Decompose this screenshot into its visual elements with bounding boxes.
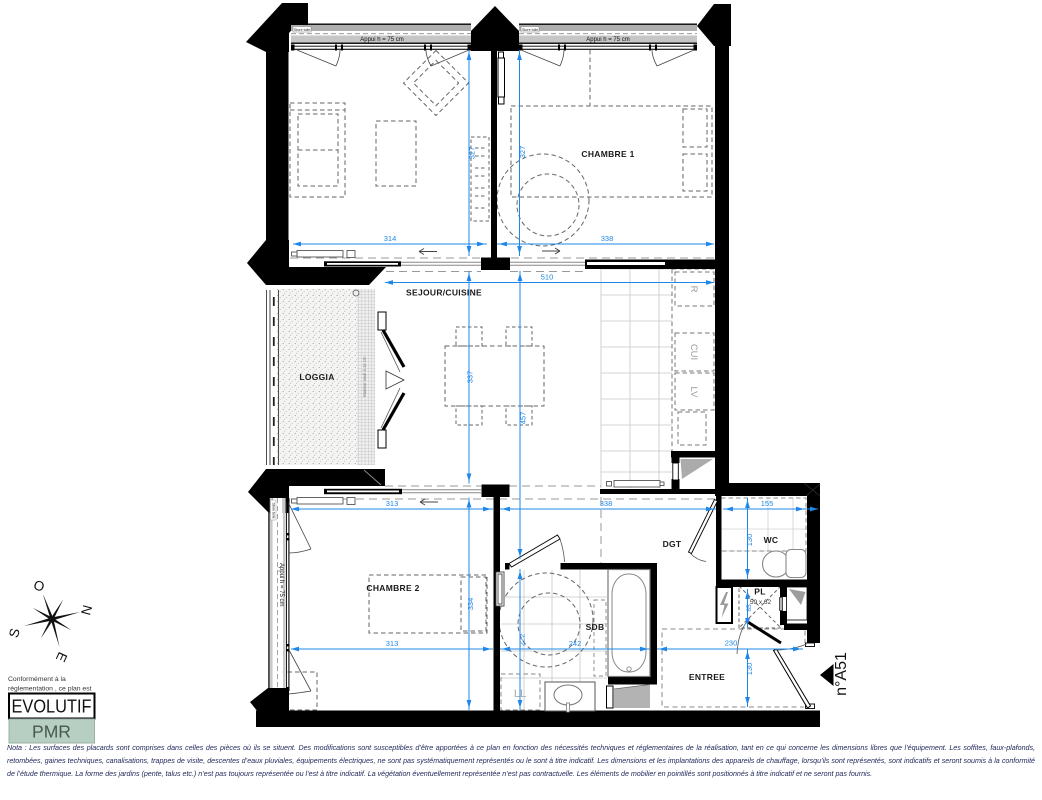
svg-text:Appui h = 75 cm: Appui h = 75 cm: [360, 37, 404, 43]
svg-text:314: 314: [384, 234, 397, 243]
svg-text:n°A51: n°A51: [833, 652, 850, 696]
svg-text:327: 327: [468, 147, 477, 160]
svg-text:510: 510: [541, 273, 554, 282]
svg-text:CHAMBRE 2: CHAMBRE 2: [366, 583, 419, 593]
svg-text:334: 334: [466, 598, 475, 611]
svg-text:59 x 62: 59 x 62: [750, 599, 772, 606]
svg-text:338: 338: [600, 499, 613, 508]
svg-text:SEJOUR/CUISINE: SEJOUR/CUISINE: [406, 288, 482, 298]
svg-text:LV: LV: [688, 387, 699, 399]
svg-text:Conformément à la: Conformément à la: [8, 676, 66, 683]
svg-text:PL: PL: [754, 587, 765, 597]
svg-text:CHAMBRE 1: CHAMBRE 1: [581, 149, 634, 159]
svg-text:337: 337: [466, 371, 475, 384]
svg-text:Appui h = 75 cm: Appui h = 75 cm: [586, 37, 630, 43]
svg-text:EVOLUTIF: EVOLUTIF: [12, 697, 92, 717]
svg-text:457: 457: [519, 412, 528, 425]
svg-text:Appui h = 75 cm: Appui h = 75 cm: [278, 563, 284, 607]
svg-text:WC: WC: [764, 535, 779, 545]
svg-text:338: 338: [601, 234, 614, 243]
svg-text:242: 242: [569, 639, 582, 648]
svg-text:313: 313: [386, 639, 399, 648]
svg-text:230: 230: [725, 639, 738, 648]
svg-text:Store toile: Store toile: [294, 28, 310, 32]
svg-text:Hauteur seuil à 15 cm: Hauteur seuil à 15 cm: [362, 356, 367, 397]
svg-text:155: 155: [761, 499, 774, 508]
svg-text:327: 327: [518, 146, 527, 159]
svg-text:130: 130: [745, 534, 754, 547]
svg-text:Store toile: Store toile: [522, 28, 538, 32]
svg-text:Store toile: Store toile: [272, 503, 276, 519]
svg-text:DGT: DGT: [663, 539, 682, 549]
svg-text:LOGGIA: LOGGIA: [299, 372, 334, 382]
svg-text:SDB: SDB: [586, 622, 605, 632]
svg-text:R: R: [688, 286, 699, 293]
svg-text:ENTREE: ENTREE: [689, 672, 725, 682]
svg-text:222: 222: [518, 634, 527, 647]
svg-text:130: 130: [745, 663, 754, 676]
svg-text:CUI: CUI: [688, 344, 699, 360]
svg-text:réglementation , ce plan est: réglementation , ce plan est: [8, 686, 92, 693]
svg-text:PMR: PMR: [32, 722, 71, 742]
svg-text:313: 313: [386, 499, 399, 508]
